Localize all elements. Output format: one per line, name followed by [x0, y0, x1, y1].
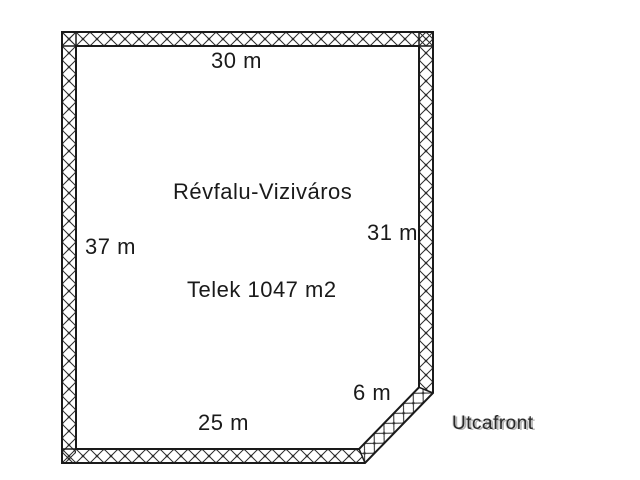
district-name-label: Révfalu-Viziváros	[173, 181, 352, 203]
dimension-left-label: 37 m	[85, 236, 136, 258]
dimension-right-label: 31 m	[367, 222, 418, 244]
dimension-top-label: 30 m	[211, 50, 262, 72]
plot-area-label: Telek 1047 m2	[187, 279, 337, 301]
hatch-band-bottom	[62, 449, 365, 463]
dimension-bottom-label: 25 m	[198, 412, 249, 434]
hatch-band-top	[62, 32, 433, 46]
hatch-band-left	[62, 32, 76, 463]
hatch-band-right	[419, 32, 433, 393]
dimension-corner-label: 6 m	[353, 382, 391, 404]
plot-diagram: 30 m 37 m 31 m 25 m 6 m Révfalu-Viziváro…	[0, 0, 640, 480]
street-front-label: Utcafront	[452, 414, 534, 433]
